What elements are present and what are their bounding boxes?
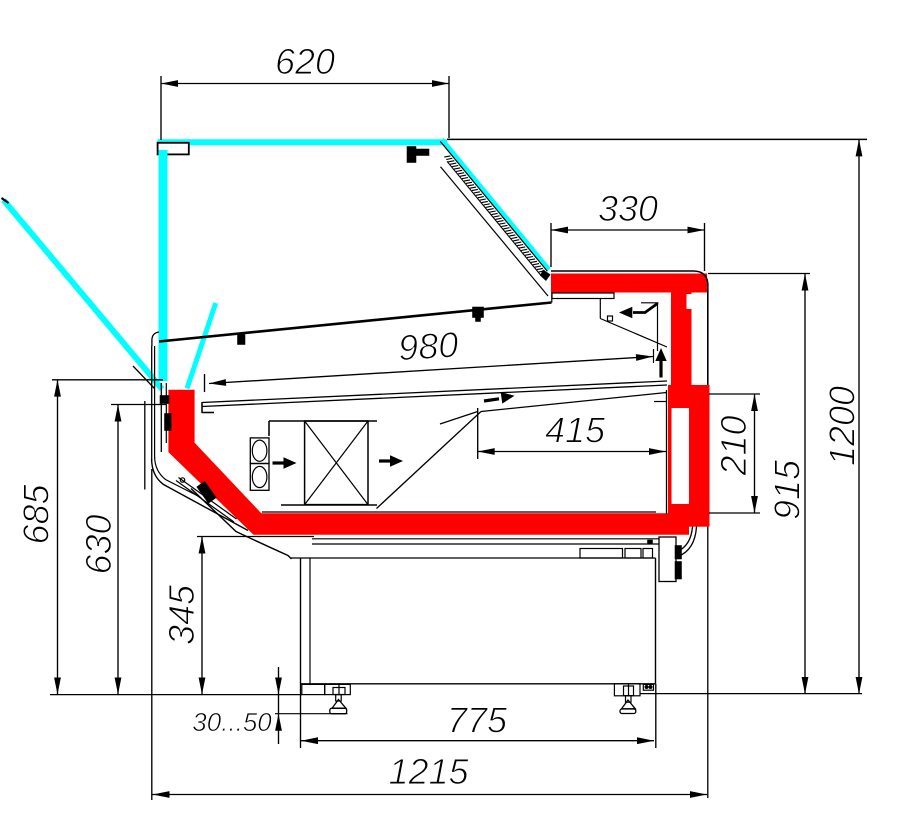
svg-text:210: 210 — [713, 415, 754, 476]
svg-text:980: 980 — [397, 324, 459, 369]
svg-text:1215: 1215 — [388, 751, 469, 792]
svg-text:775: 775 — [447, 700, 508, 741]
svg-text:630: 630 — [78, 514, 119, 574]
svg-text:1200: 1200 — [822, 386, 863, 466]
svg-text:915: 915 — [767, 459, 808, 520]
svg-text:345: 345 — [161, 584, 202, 645]
svg-text:30...50: 30...50 — [192, 707, 272, 737]
svg-text:415: 415 — [545, 410, 606, 451]
svg-text:685: 685 — [16, 483, 57, 544]
svg-text:330: 330 — [598, 188, 658, 229]
svg-text:620: 620 — [275, 41, 335, 82]
